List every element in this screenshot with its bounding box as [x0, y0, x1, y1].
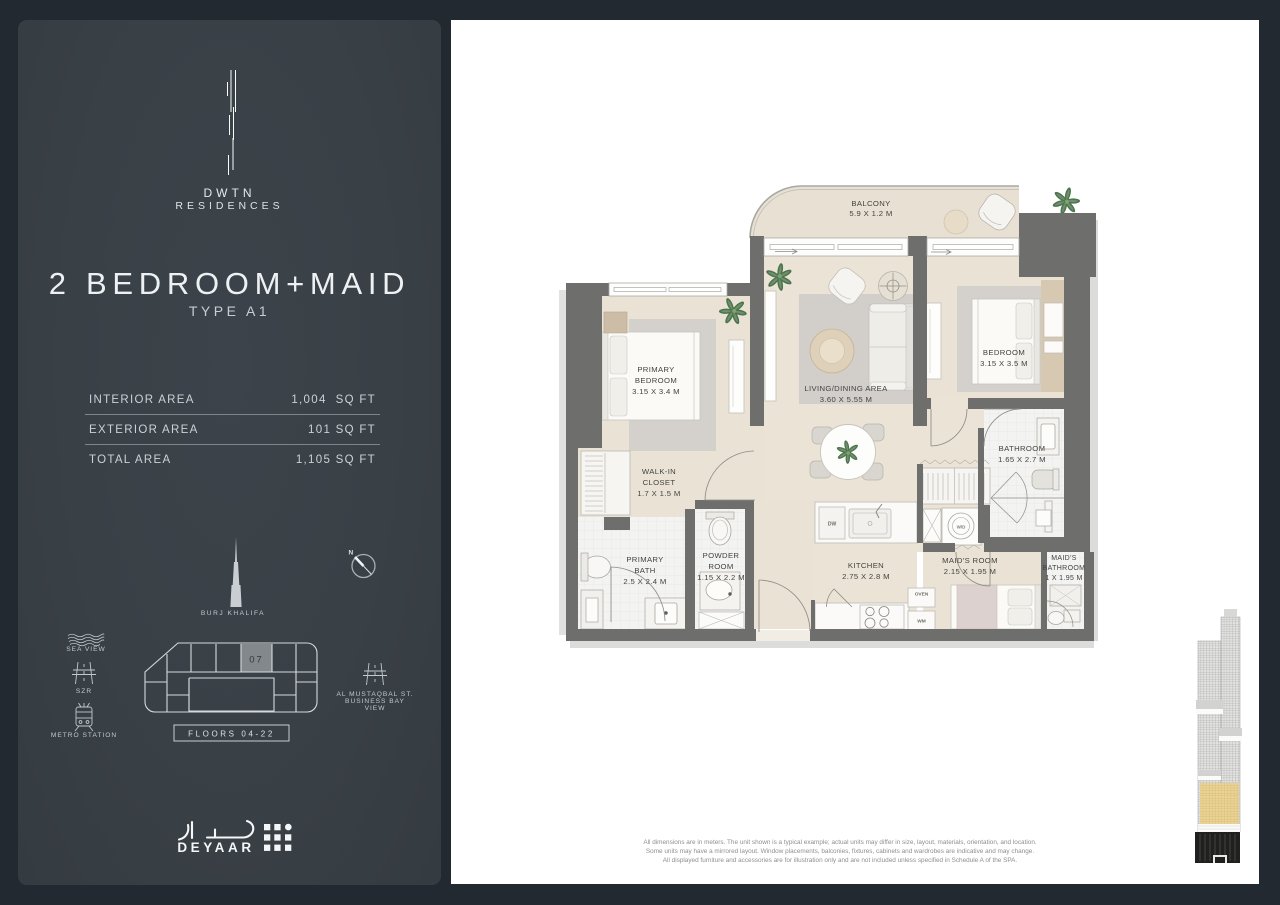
svg-text:WALK-IN: WALK-IN — [642, 467, 676, 476]
svg-text:MAID'S: MAID'S — [1051, 555, 1077, 562]
svg-text:BATHROOM: BATHROOM — [1043, 565, 1086, 572]
svg-text:WM: WM — [917, 619, 926, 625]
svg-text:MAID'S ROOM: MAID'S ROOM — [942, 556, 998, 565]
svg-text:BATHROOM: BATHROOM — [999, 444, 1046, 453]
svg-text:2.75 X 2.8 M: 2.75 X 2.8 M — [842, 572, 890, 581]
svg-text:2.15 X 1.95 M: 2.15 X 1.95 M — [944, 567, 996, 576]
svg-text:BEDROOM: BEDROOM — [983, 348, 1025, 357]
svg-text:BEDROOM: BEDROOM — [635, 376, 677, 385]
svg-text:KITCHEN: KITCHEN — [848, 561, 884, 570]
svg-text:1 X 1.95 M: 1 X 1.95 M — [1045, 575, 1082, 582]
svg-text:1.65 X 2.7 M: 1.65 X 2.7 M — [998, 455, 1046, 464]
svg-text:3.15 X 3.5 M: 3.15 X 3.5 M — [980, 359, 1028, 368]
svg-text:2.5 X 2.4 M: 2.5 X 2.4 M — [623, 577, 666, 586]
svg-text:POWDER: POWDER — [703, 551, 740, 560]
svg-text:1.7 X 1.5 M: 1.7 X 1.5 M — [637, 489, 680, 498]
svg-text:DW: DW — [828, 522, 837, 528]
svg-text:PRIMARY: PRIMARY — [637, 365, 674, 374]
svg-text:PRIMARY: PRIMARY — [626, 555, 663, 564]
svg-text:LIVING/DINING AREA: LIVING/DINING AREA — [804, 384, 888, 393]
svg-text:3.15 X 3.4 M: 3.15 X 3.4 M — [632, 387, 680, 396]
svg-text:3.60 X 5.55 M: 3.60 X 5.55 M — [820, 395, 872, 404]
svg-text:BALCONY: BALCONY — [851, 199, 890, 208]
svg-text:W/D: W/D — [957, 525, 966, 530]
svg-text:CLOSET: CLOSET — [643, 478, 676, 487]
svg-text:OVEN: OVEN — [915, 592, 929, 598]
svg-text:1.15 X 2.2 M: 1.15 X 2.2 M — [697, 573, 745, 582]
svg-text:5.9 X 1.2 M: 5.9 X 1.2 M — [849, 209, 892, 218]
svg-text:ROOM: ROOM — [708, 562, 733, 571]
svg-text:BATH: BATH — [634, 566, 655, 575]
